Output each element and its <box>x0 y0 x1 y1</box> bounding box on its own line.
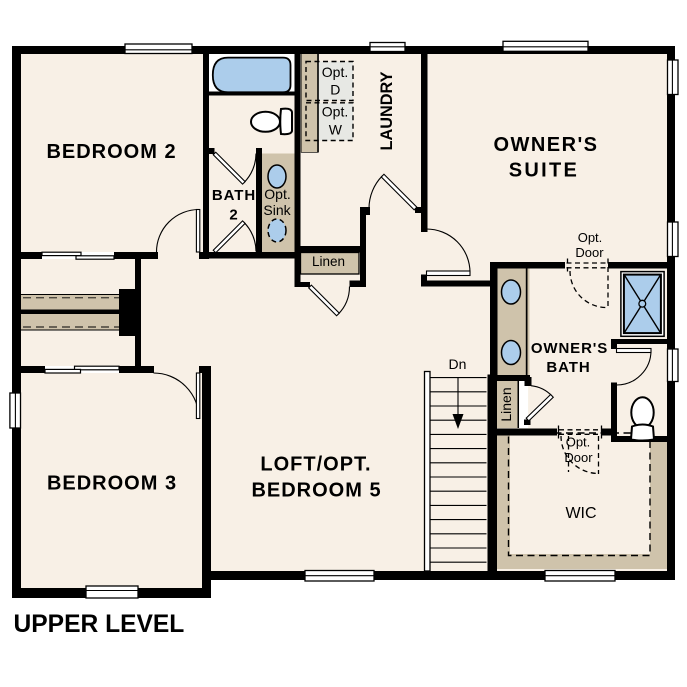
svg-text:BATH: BATH <box>546 359 590 376</box>
svg-text:Dn: Dn <box>449 356 467 372</box>
svg-text:SUITE: SUITE <box>509 160 579 182</box>
svg-text:Door: Door <box>575 245 604 260</box>
svg-text:Opt.: Opt. <box>322 104 348 120</box>
svg-text:OWNER'S: OWNER'S <box>531 340 608 357</box>
svg-text:BEDROOM 2: BEDROOM 2 <box>46 141 176 163</box>
svg-text:W: W <box>329 122 343 138</box>
svg-text:BATH: BATH <box>212 187 256 204</box>
svg-text:LAUNDRY: LAUNDRY <box>378 71 396 150</box>
svg-text:Linen: Linen <box>312 254 345 269</box>
svg-text:UPPER LEVEL: UPPER LEVEL <box>14 611 185 638</box>
svg-text:Door: Door <box>564 450 593 465</box>
svg-text:OWNER'S: OWNER'S <box>494 134 599 156</box>
svg-text:BEDROOM 3: BEDROOM 3 <box>47 473 177 495</box>
svg-text:Opt.: Opt. <box>264 186 290 202</box>
svg-text:Linen: Linen <box>498 387 514 421</box>
svg-text:Opt.: Opt. <box>566 435 591 450</box>
svg-text:LOFT/OPT.: LOFT/OPT. <box>260 454 371 476</box>
svg-text:WIC: WIC <box>565 505 596 522</box>
svg-text:Opt.: Opt. <box>578 230 603 245</box>
svg-text:Sink: Sink <box>263 202 291 218</box>
svg-text:Opt.: Opt. <box>322 64 348 80</box>
svg-text:D: D <box>330 82 340 98</box>
svg-text:2: 2 <box>229 207 238 224</box>
svg-text:BEDROOM 5: BEDROOM 5 <box>251 480 381 502</box>
